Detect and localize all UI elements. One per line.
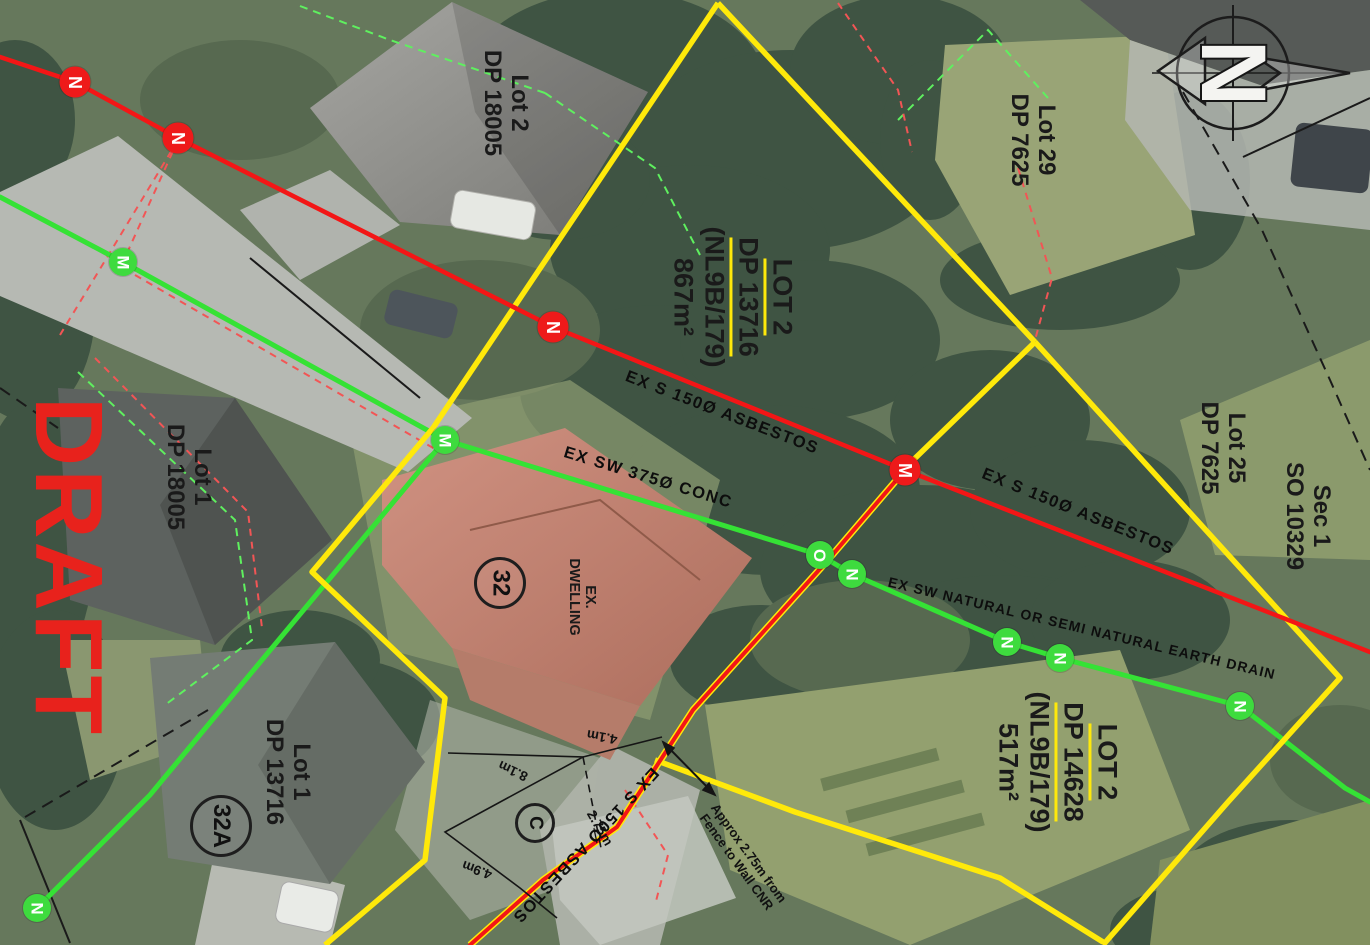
parcel-line: Lot 1	[287, 719, 314, 825]
parcel-line: 517m²	[994, 691, 1024, 832]
stormwater-node-marker: N	[993, 628, 1021, 656]
sewer-manhole-marker: M	[890, 455, 921, 486]
parcel-line: DP 7625	[1195, 402, 1222, 495]
parcel-label-lot1-dp13716: Lot 1 DP 13716	[260, 719, 314, 825]
dwelling-line: EX.	[582, 558, 598, 635]
house-number-32: 32	[474, 557, 526, 609]
stormwater-node-marker: M	[109, 248, 137, 276]
parcel-label-lot25-dp7625: Lot 25 DP 7625	[1195, 402, 1249, 495]
parcel-line: DP 14628	[1054, 702, 1088, 822]
sewer-manhole-marker: N	[538, 312, 569, 343]
parcel-line: Lot 29	[1032, 94, 1059, 187]
dwelling-line: DWELLING	[566, 558, 582, 635]
north-letter: N	[1182, 40, 1284, 106]
parcel-label-sec1-so10329: Sec 1 SO 10329	[1280, 462, 1334, 570]
stormwater-node-marker: N	[1046, 644, 1074, 672]
parcel-label-lot29-dp7625: Lot 29 DP 7625	[1005, 94, 1059, 187]
parcel-line: DP 13716	[729, 237, 763, 357]
sewer-manhole-marker: N	[60, 67, 91, 98]
parcel-line: DP 18005	[161, 424, 188, 530]
parcel-line: DP 7625	[1005, 94, 1032, 187]
area-label-c: C	[515, 803, 555, 843]
sewer-manhole-marker: N	[163, 123, 194, 154]
ex-dwelling-label: EX. DWELLING	[566, 558, 598, 635]
parcel-line: SO 10329	[1280, 462, 1307, 570]
site-plan-aerial: N DRAFT Lot 2 DP 18005 Lot 29 DP 7625 LO…	[0, 0, 1370, 945]
stormwater-node-marker: N	[1226, 692, 1254, 720]
parcel-label-lot1-dp18005: Lot 1 DP 18005	[161, 424, 215, 530]
parcel-line: (NL9B/179)	[699, 226, 729, 367]
draft-watermark: DRAFT	[13, 397, 123, 737]
car-dark-2	[1290, 122, 1370, 194]
parcel-line: LOT 2	[763, 259, 797, 336]
stormwater-node-marker: O	[806, 541, 834, 569]
stormwater-node-marker: N	[23, 894, 51, 922]
stormwater-node-marker: M	[431, 426, 459, 454]
parcel-line: DP 13716	[260, 719, 287, 825]
parcel-label-lot2-dp14628: LOT 2 DP 14628 (NL9B/179) 517m²	[994, 691, 1123, 832]
stormwater-node-marker: N	[838, 560, 866, 588]
parcel-line: Lot 2	[505, 50, 532, 156]
parcel-line: 867m²	[669, 226, 699, 367]
parcel-line: DP 18005	[478, 50, 505, 156]
parcel-label-lot2-dp13716: LOT 2 DP 13716 (NL9B/179) 867m²	[669, 226, 798, 367]
parcel-line: (NL9B/179)	[1024, 691, 1054, 832]
parcel-line: Lot 1	[188, 424, 215, 530]
parcel-line: Sec 1	[1307, 462, 1334, 570]
parcel-label-lot2-dp18005: Lot 2 DP 18005	[478, 50, 532, 156]
parcel-line: Lot 25	[1222, 402, 1249, 495]
parcel-line: LOT 2	[1088, 724, 1122, 801]
house-number-32a: 32A	[190, 795, 252, 857]
